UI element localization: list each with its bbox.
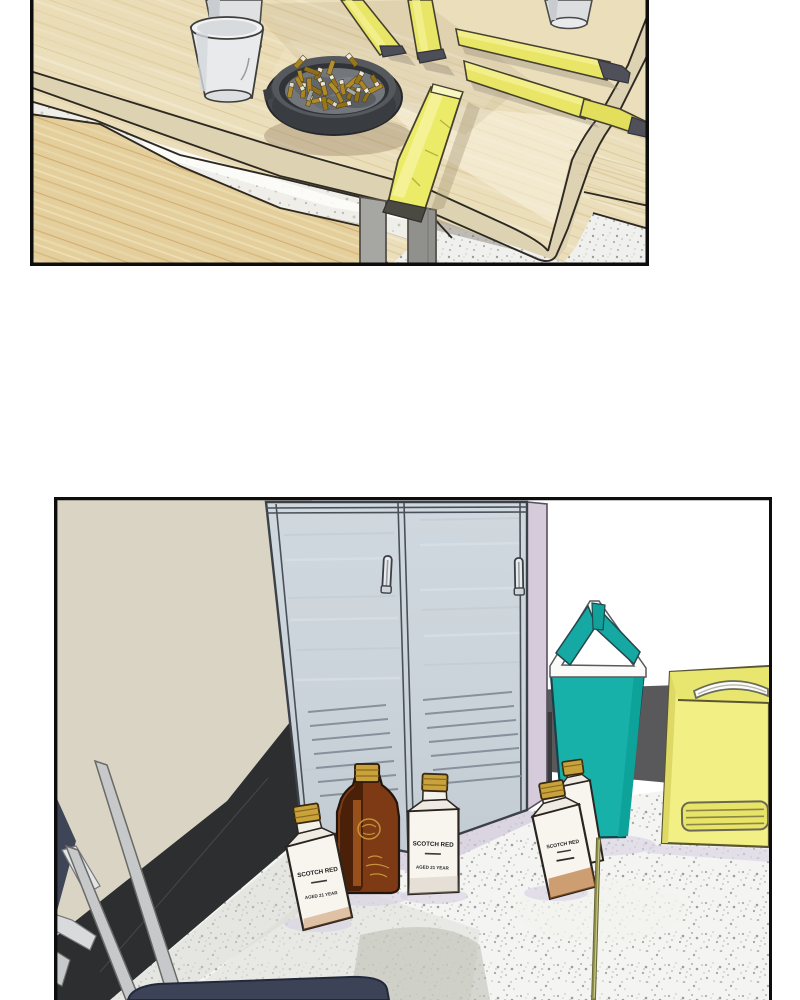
svg-text:SCOTCH RED: SCOTCH RED	[413, 840, 455, 848]
